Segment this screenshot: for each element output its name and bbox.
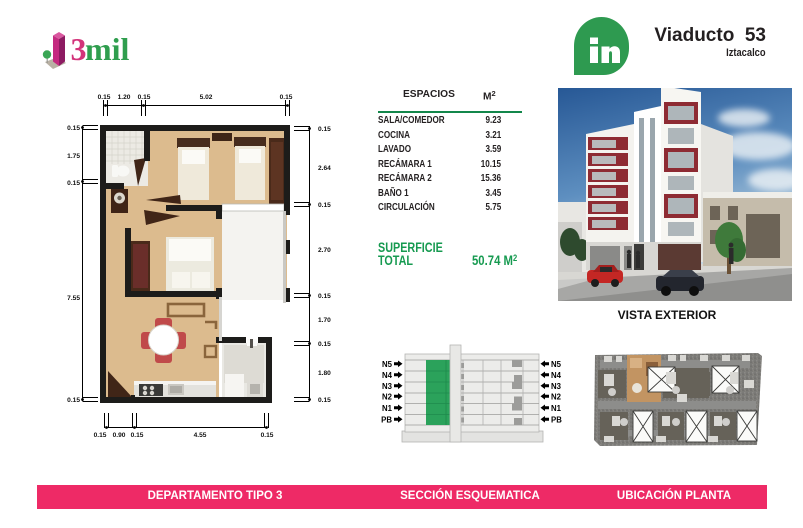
svg-text:0.15: 0.15 — [318, 126, 331, 133]
svg-text:4.55: 4.55 — [194, 432, 207, 439]
svg-text:0.15: 0.15 — [318, 341, 331, 348]
svg-text:N4: N4 — [382, 371, 393, 380]
svg-text:N1: N1 — [382, 404, 393, 413]
svg-text:1.80: 1.80 — [318, 370, 331, 377]
svg-text:mil: mil — [85, 31, 130, 67]
svg-text:5.02: 5.02 — [200, 94, 213, 101]
svg-text:0.15: 0.15 — [318, 397, 331, 404]
svg-text:N3: N3 — [551, 382, 562, 391]
svg-text:0.15: 0.15 — [261, 432, 274, 439]
svg-text:N5: N5 — [551, 360, 562, 369]
svg-text:0.15: 0.15 — [94, 432, 107, 439]
svg-text:0.15: 0.15 — [318, 293, 331, 300]
svg-text:N2: N2 — [551, 393, 562, 402]
svg-text:N3: N3 — [382, 382, 393, 391]
svg-text:2.70: 2.70 — [318, 247, 331, 254]
svg-text:N4: N4 — [551, 371, 562, 380]
svg-text:N1: N1 — [551, 404, 562, 413]
svg-text:0.15: 0.15 — [280, 94, 293, 101]
svg-text:1.20: 1.20 — [118, 94, 131, 101]
svg-text:N5: N5 — [382, 360, 393, 369]
svg-text:0.90: 0.90 — [113, 432, 126, 439]
svg-text:0.15: 0.15 — [318, 202, 331, 209]
svg-text:0.15: 0.15 — [67, 125, 80, 132]
svg-text:0.15: 0.15 — [131, 432, 144, 439]
svg-text:1.75: 1.75 — [67, 153, 80, 160]
svg-text:0.15: 0.15 — [67, 180, 80, 187]
svg-text:1.70: 1.70 — [318, 317, 331, 324]
svg-text:7.55: 7.55 — [67, 295, 80, 302]
svg-text:2.64: 2.64 — [318, 165, 331, 172]
svg-text:PB: PB — [381, 416, 392, 425]
svg-text:0.15: 0.15 — [98, 94, 111, 101]
svg-text:0.15: 0.15 — [138, 94, 151, 101]
svg-text:PB: PB — [551, 416, 562, 425]
svg-text:0.15: 0.15 — [67, 397, 80, 404]
svg-text:N2: N2 — [382, 393, 393, 402]
